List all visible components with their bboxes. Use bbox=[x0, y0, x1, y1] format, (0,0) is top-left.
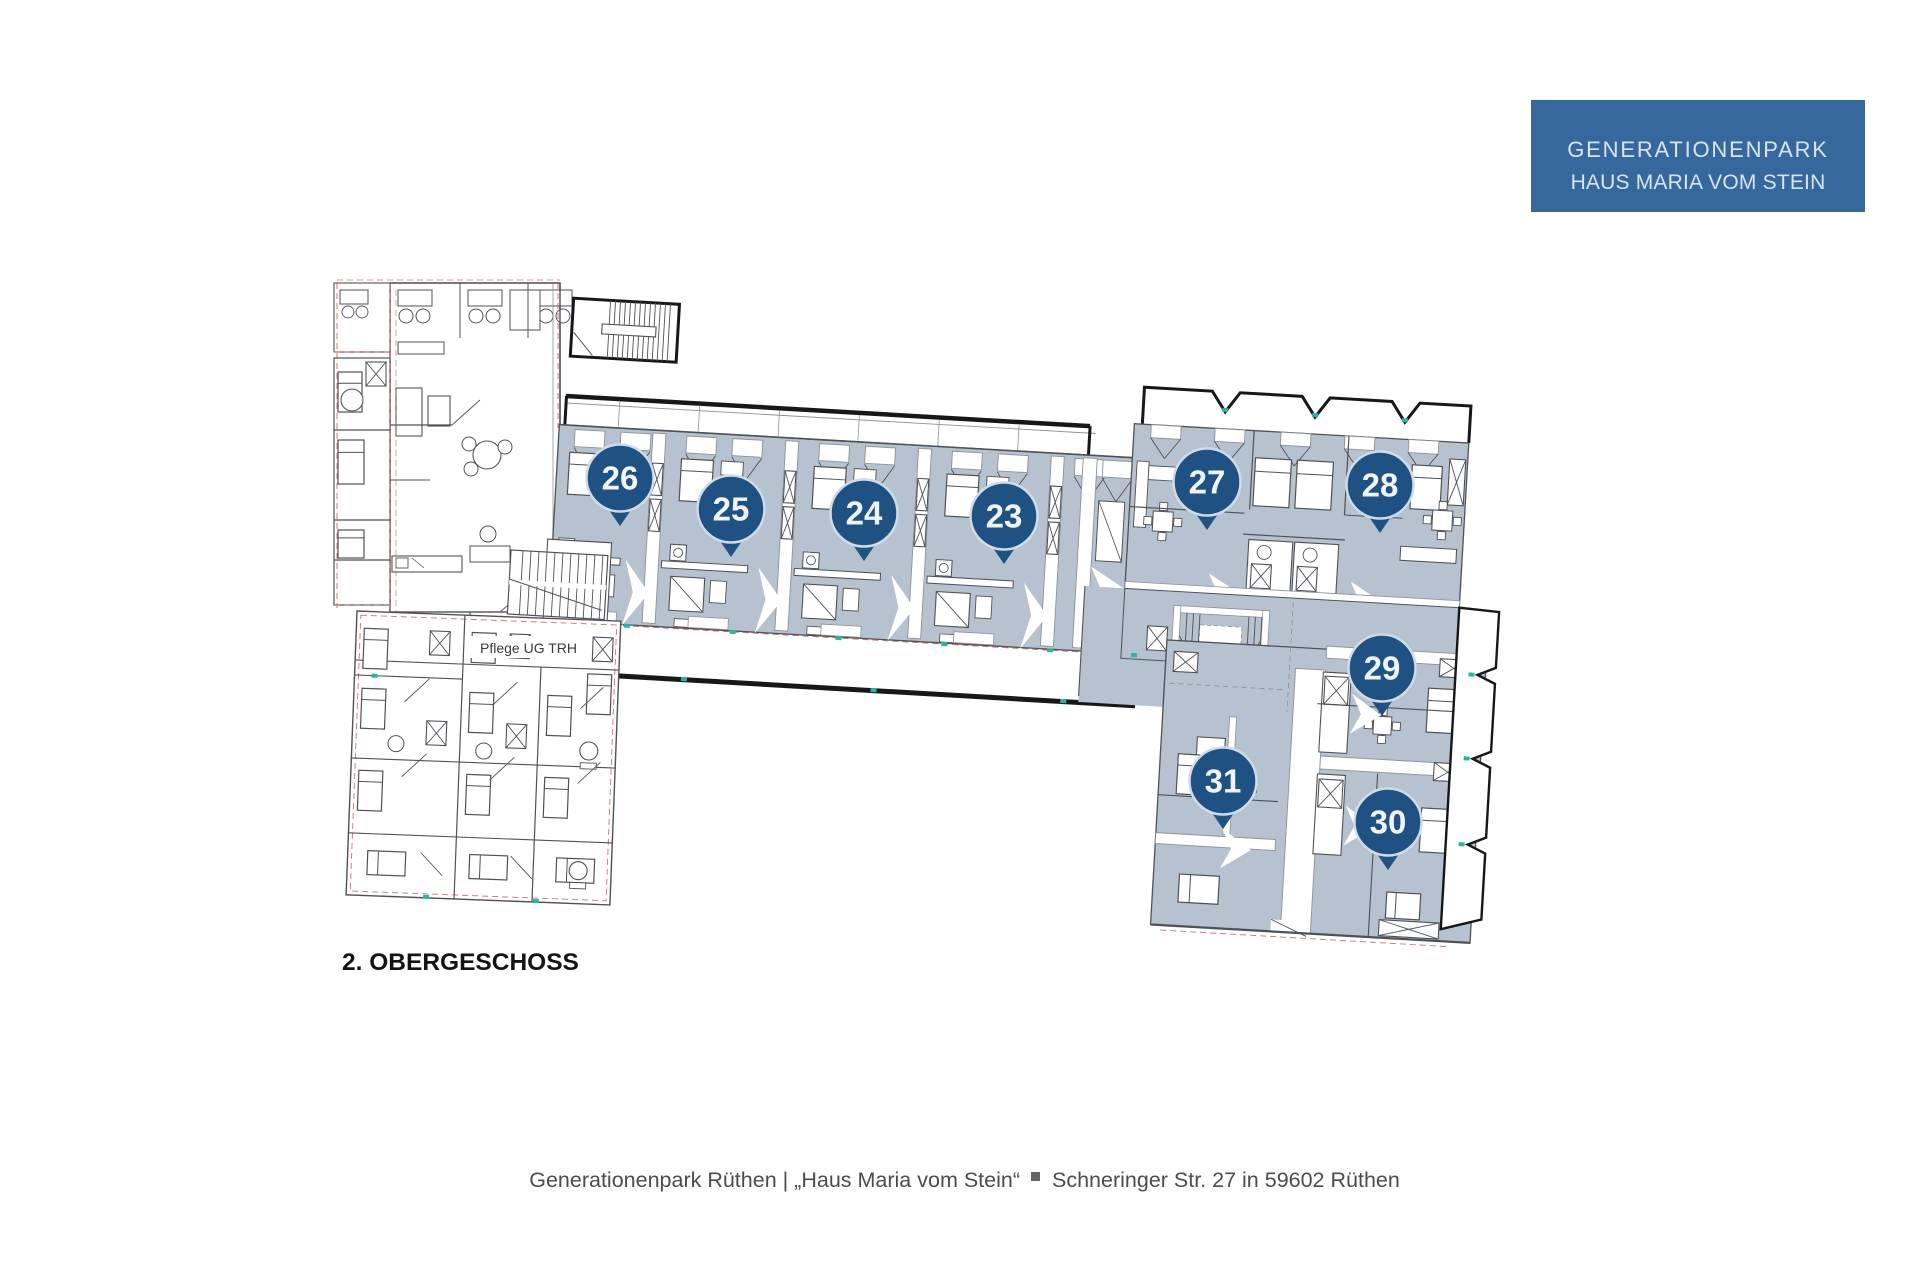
svg-text:Schneringer Str. 27 in 59602 R: Schneringer Str. 27 in 59602 Rüthen bbox=[1052, 1168, 1400, 1192]
svg-text:27: 27 bbox=[1189, 464, 1226, 501]
svg-text:Generationenpark Rüthen | „Hau: Generationenpark Rüthen | „Haus Maria vo… bbox=[529, 1168, 1020, 1192]
svg-text:31: 31 bbox=[1205, 763, 1242, 800]
svg-text:GENERATIONENPARK: GENERATIONENPARK bbox=[1567, 137, 1828, 162]
svg-text:30: 30 bbox=[1370, 804, 1407, 841]
svg-text:HAUS MARIA VOM STEIN: HAUS MARIA VOM STEIN bbox=[1571, 171, 1826, 194]
svg-text:Pflege UG TRH: Pflege UG TRH bbox=[480, 640, 577, 656]
svg-text:2. OBERGESCHOSS: 2. OBERGESCHOSS bbox=[342, 949, 579, 976]
svg-text:28: 28 bbox=[1362, 467, 1399, 504]
svg-text:26: 26 bbox=[602, 460, 639, 497]
svg-text:23: 23 bbox=[986, 498, 1023, 535]
svg-text:29: 29 bbox=[1364, 650, 1401, 687]
svg-text:24: 24 bbox=[846, 495, 883, 532]
svg-text:25: 25 bbox=[713, 491, 750, 528]
